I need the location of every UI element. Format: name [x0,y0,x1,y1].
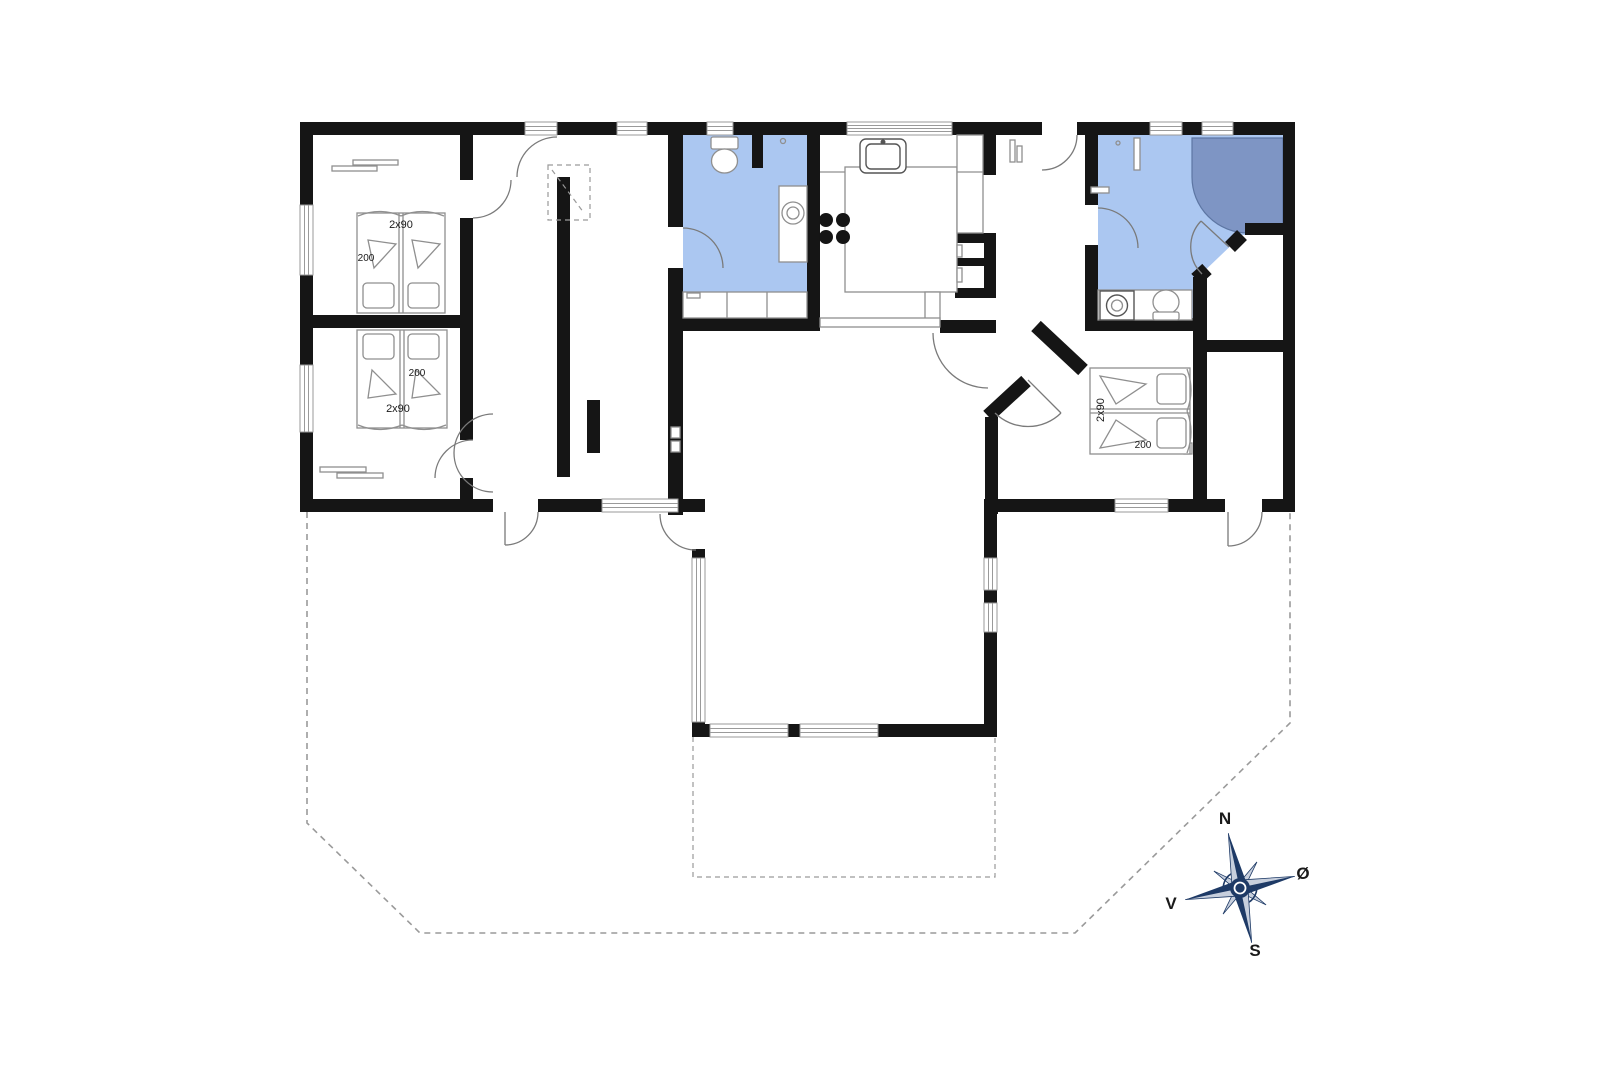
wall-segment [692,724,710,737]
terrace-outline [307,512,1290,933]
toilet-icon [1153,290,1179,320]
wall-segment [1085,245,1098,325]
pillow [1157,418,1186,448]
wall-segment [788,724,800,737]
wall-segment [984,590,997,603]
wall-segment [984,632,997,737]
compass-rose: N Ø S V [1165,809,1309,960]
compass-label-west: V [1165,894,1177,913]
washbasin-icon [779,186,807,262]
kitchen-counter-right [957,135,983,233]
bed-size-label: 2x90 [389,219,413,231]
bed-length-label: 200 [358,253,375,264]
wall-segment [557,122,617,135]
wall-segment [807,135,820,331]
shelf-icon [320,467,383,478]
wall-segment [1077,122,1150,135]
diagonal-wall [1036,326,1083,370]
window [300,365,313,432]
wall-segment [940,320,996,333]
bed-length-label: 200 [1135,440,1152,451]
vanity-cabinet [683,292,807,318]
wall-segment [460,218,473,315]
wall-segment [733,122,847,135]
door-exterior-left [505,512,538,545]
pillow [1157,374,1186,404]
window [300,205,313,275]
door-arc-living [660,514,696,550]
bed-left-top: 2x90 200 [357,212,445,314]
window [710,724,788,737]
wall-segment [300,275,313,365]
door-arc-hall-bottom [454,414,493,492]
window [602,499,678,512]
window-tall [692,558,705,722]
pillow [363,283,394,308]
window [1115,499,1168,512]
wall-segment [752,135,763,168]
wall-segment [538,499,602,512]
kitchen-island [845,167,957,292]
wall-segment [460,135,473,180]
pillow [363,334,394,359]
wall-segment [1182,122,1202,135]
wall-segment [878,724,997,737]
kitchen-counter-bar [820,318,940,327]
wall-segment [984,233,996,298]
shower-screen [1134,138,1140,170]
wall-segment [985,417,998,514]
shelf-icon [332,160,398,171]
wall-segment [983,135,996,175]
wall-segment [668,318,820,331]
wall-segment [1193,277,1207,512]
kitchen [819,135,983,327]
door-arc-entry-living [933,333,988,388]
wall-segment [984,512,997,558]
wall-segment [1283,122,1295,512]
window [707,122,733,135]
window [800,724,878,737]
wall-segment [668,268,683,515]
bed-size-label: 2x90 [386,403,410,415]
floor-plan-drawing: 2x90 200 200 2x90 2x90 200 [0,0,1600,1066]
diagonal-wall [988,381,1026,416]
wall-segment [300,122,313,205]
terrace-inner-patio [693,737,995,877]
wall-segment [647,122,707,135]
compass-label-east: Ø [1296,864,1309,883]
pillow [408,334,439,359]
door-exterior-right [1228,512,1262,546]
wall-segment [1085,135,1098,205]
wall-segment [952,122,1042,135]
wall-segment [984,499,1115,512]
bed-left-bottom: 200 2x90 [357,330,447,430]
bed-right: 2x90 200 [1090,368,1191,454]
bed-length-label: 200 [409,368,426,379]
wall-segment [1245,223,1283,235]
window [984,603,997,632]
window-kitchen [847,122,952,135]
compass-label-north: N [1219,809,1231,828]
door-arc-bedroom1 [473,180,511,218]
faucet-icon [687,293,700,298]
washing-machine-icon [1100,291,1134,320]
compass-label-south: S [1249,941,1260,960]
wall-segment [557,177,570,477]
kitchen-sink-icon [860,139,906,173]
terrace-boundary [307,512,1290,933]
floor-plan-page: 2x90 200 200 2x90 2x90 200 [0,0,1600,1066]
wall-segment [587,400,600,453]
door-arc-entrance [1042,135,1077,170]
wall-segment [300,122,525,135]
bed-size-label: 2x90 [1095,398,1107,422]
counter-step [925,292,940,320]
window [1150,122,1182,135]
compass-star [1174,822,1307,955]
pillow [408,283,439,308]
window [525,122,557,135]
window [984,558,997,590]
wall-segment [313,315,460,328]
wall-segment [668,135,683,227]
wall-segment [1193,340,1283,352]
door-arc-hall-top [517,137,557,177]
window [1202,122,1233,135]
towel-rail-icon [1091,187,1109,193]
shelf-icon [1010,140,1022,162]
diagonal-wall [1230,235,1242,247]
window [617,122,647,135]
toilet-icon [711,137,738,173]
